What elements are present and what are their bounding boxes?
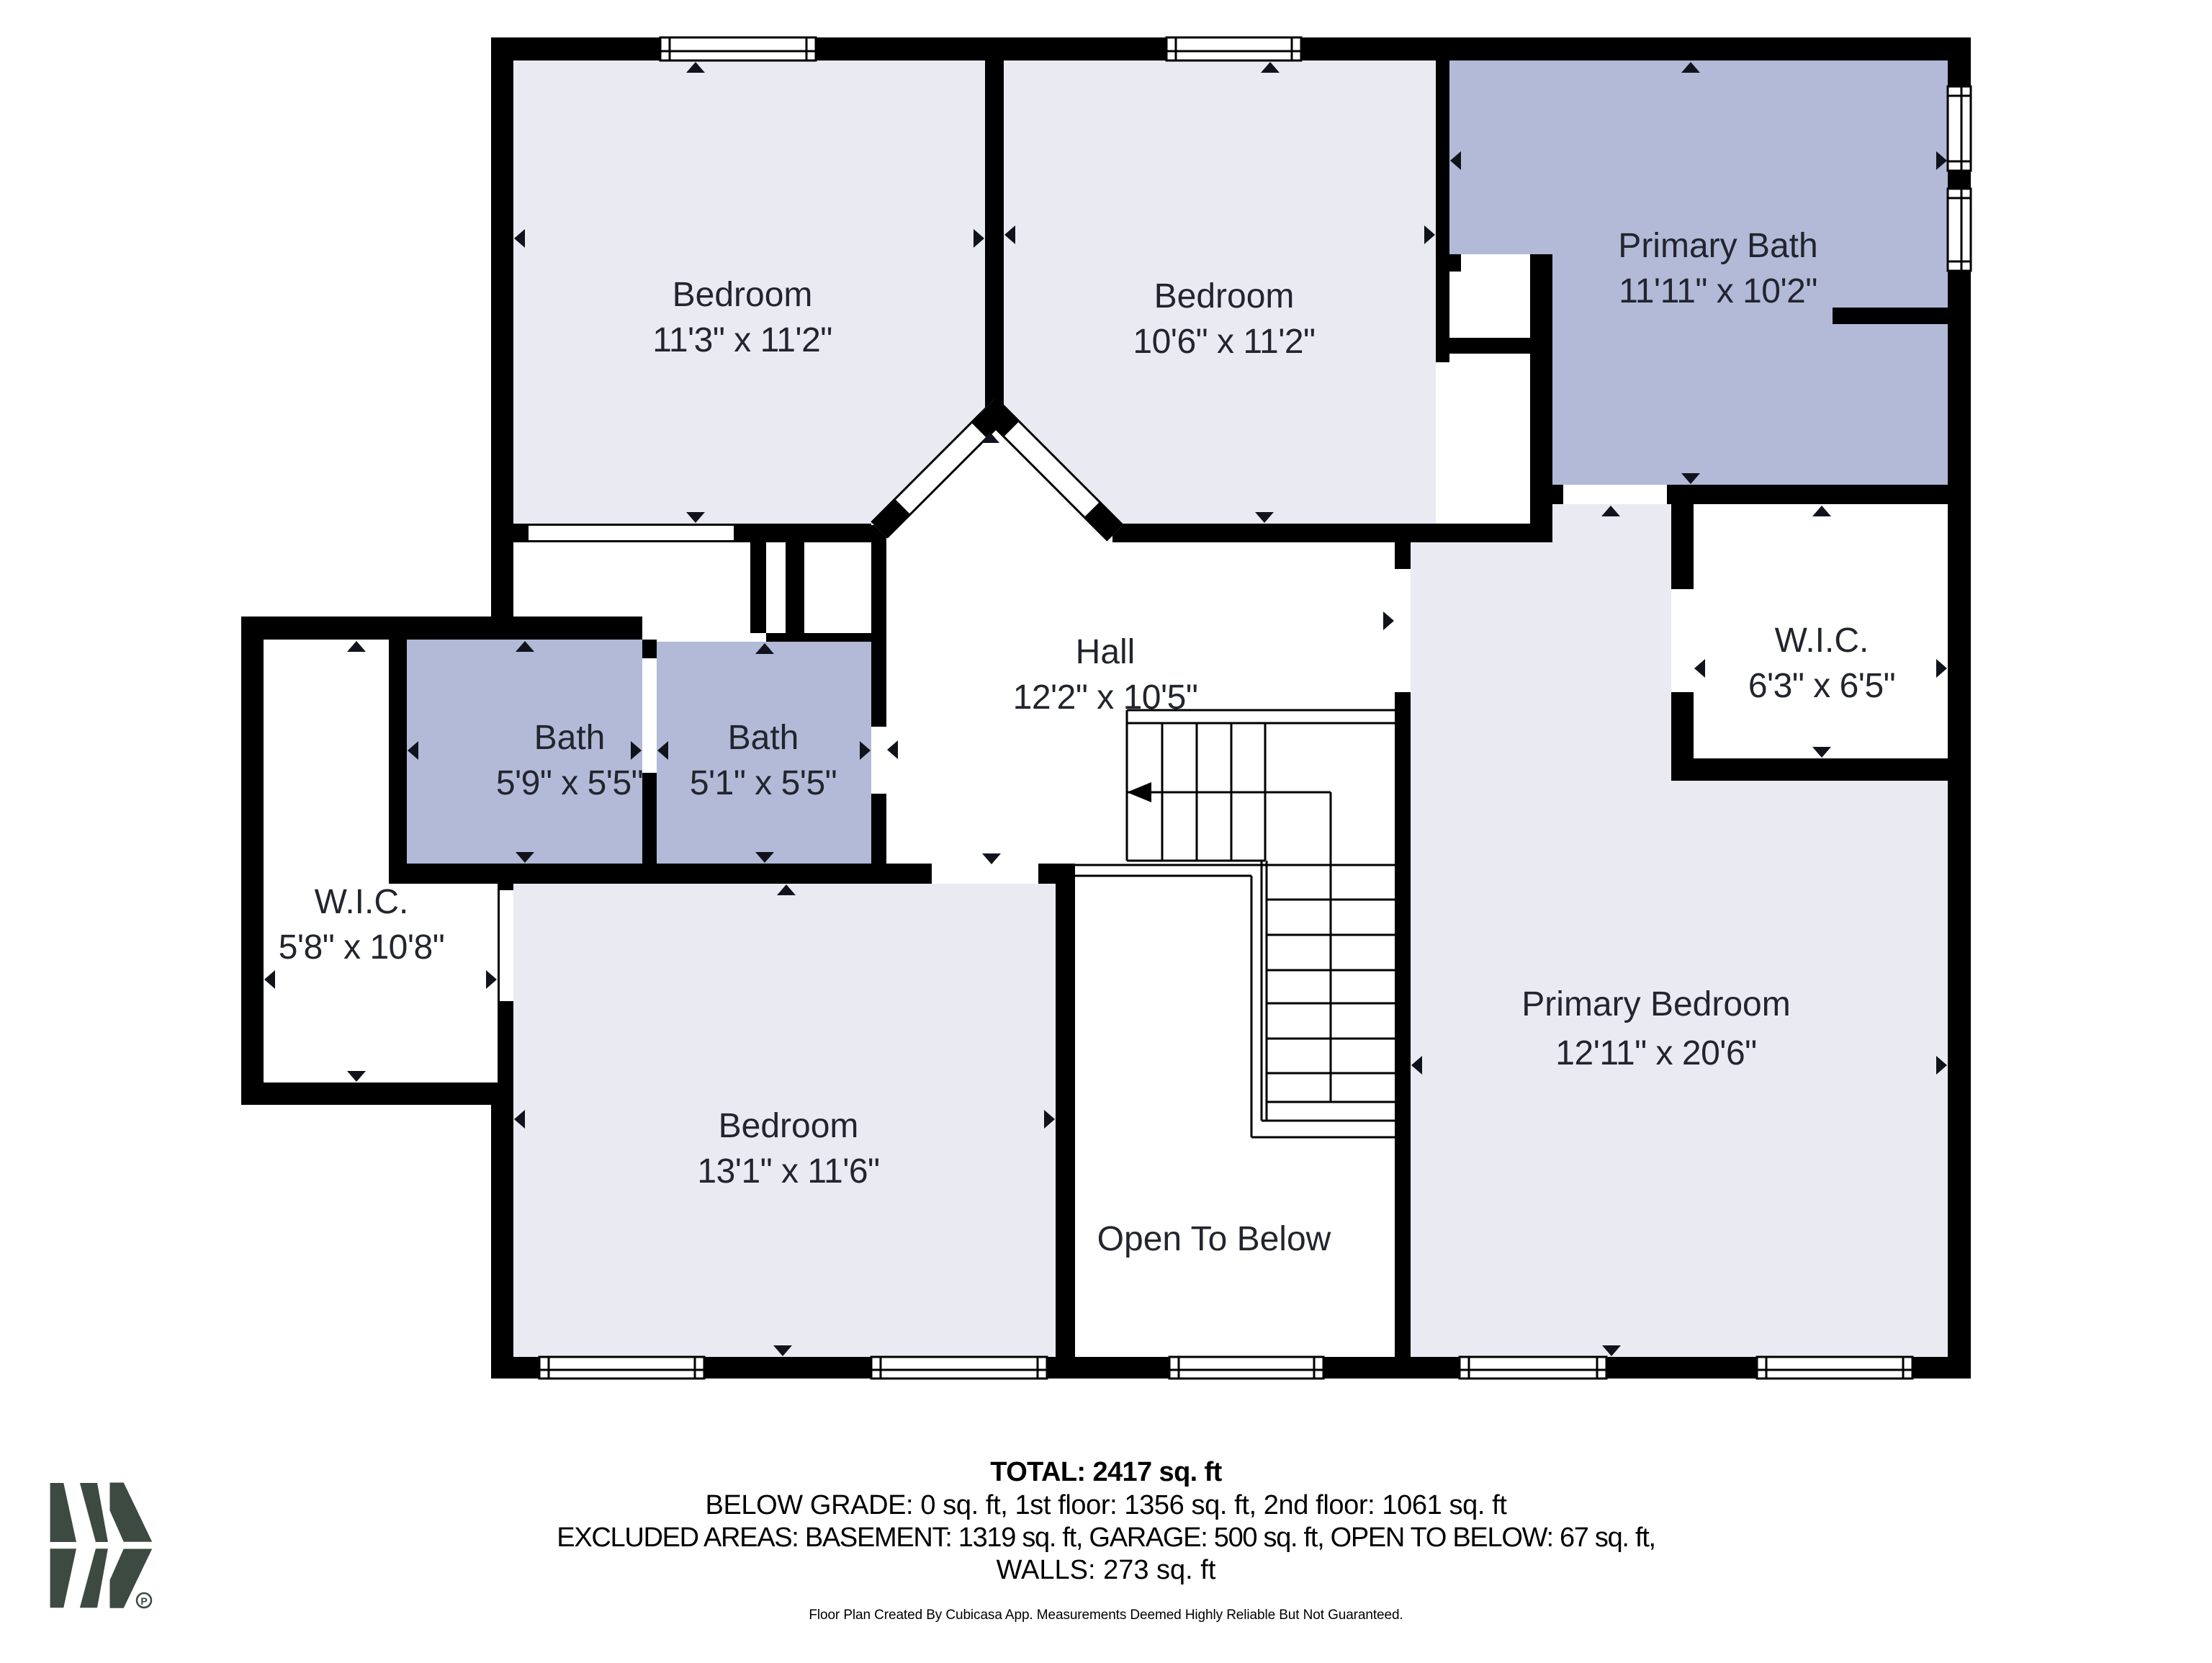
svg-text:5'9" x 5'5": 5'9" x 5'5" <box>496 764 643 802</box>
svg-text:12'2" x 10'5": 12'2" x 10'5" <box>1013 678 1198 717</box>
svg-text:11'3" x 11'2": 11'3" x 11'2" <box>652 321 832 359</box>
svg-text:11'11" x 10'2": 11'11" x 10'2" <box>1619 272 1817 310</box>
svg-text:Bedroom: Bedroom <box>1154 277 1295 315</box>
svg-text:Bedroom: Bedroom <box>673 276 813 314</box>
svg-text:BELOW GRADE: 0 sq. ft, 1st flo: BELOW GRADE: 0 sq. ft, 1st floor: 1356 s… <box>706 1490 1508 1520</box>
svg-text:5'1" x 5'5": 5'1" x 5'5" <box>690 764 837 802</box>
svg-text:Bath: Bath <box>728 719 799 757</box>
svg-text:Hall: Hall <box>1076 633 1136 671</box>
svg-text:W.I.C.: W.I.C. <box>315 883 409 921</box>
svg-text:WALLS: 273 sq. ft: WALLS: 273 sq. ft <box>997 1555 1216 1585</box>
svg-text:Primary Bedroom: Primary Bedroom <box>1521 985 1790 1023</box>
svg-text:Floor Plan Created By Cubicasa: Floor Plan Created By Cubicasa App. Meas… <box>809 1608 1403 1623</box>
svg-text:13'1" x 11'6": 13'1" x 11'6" <box>697 1152 879 1191</box>
svg-text:12'11" x 20'6": 12'11" x 20'6" <box>1555 1034 1756 1072</box>
svg-text:W.I.C.: W.I.C. <box>1775 622 1869 660</box>
svg-text:Primary Bath: Primary Bath <box>1618 227 1817 265</box>
svg-text:P: P <box>140 1595 147 1607</box>
svg-text:5'8" x 10'8": 5'8" x 10'8" <box>279 928 445 967</box>
svg-text:Open To Below: Open To Below <box>1097 1220 1331 1258</box>
svg-text:TOTAL: 2417 sq. ft: TOTAL: 2417 sq. ft <box>990 1457 1222 1487</box>
svg-text:Bath: Bath <box>534 719 606 757</box>
svg-text:EXCLUDED AREAS: BASEMENT: 1319: EXCLUDED AREAS: BASEMENT: 1319 sq. ft, G… <box>557 1523 1655 1553</box>
svg-text:6'3" x 6'5": 6'3" x 6'5" <box>1748 667 1895 705</box>
svg-text:10'6" x 11'2": 10'6" x 11'2" <box>1133 323 1315 361</box>
svg-text:Bedroom: Bedroom <box>719 1107 859 1145</box>
